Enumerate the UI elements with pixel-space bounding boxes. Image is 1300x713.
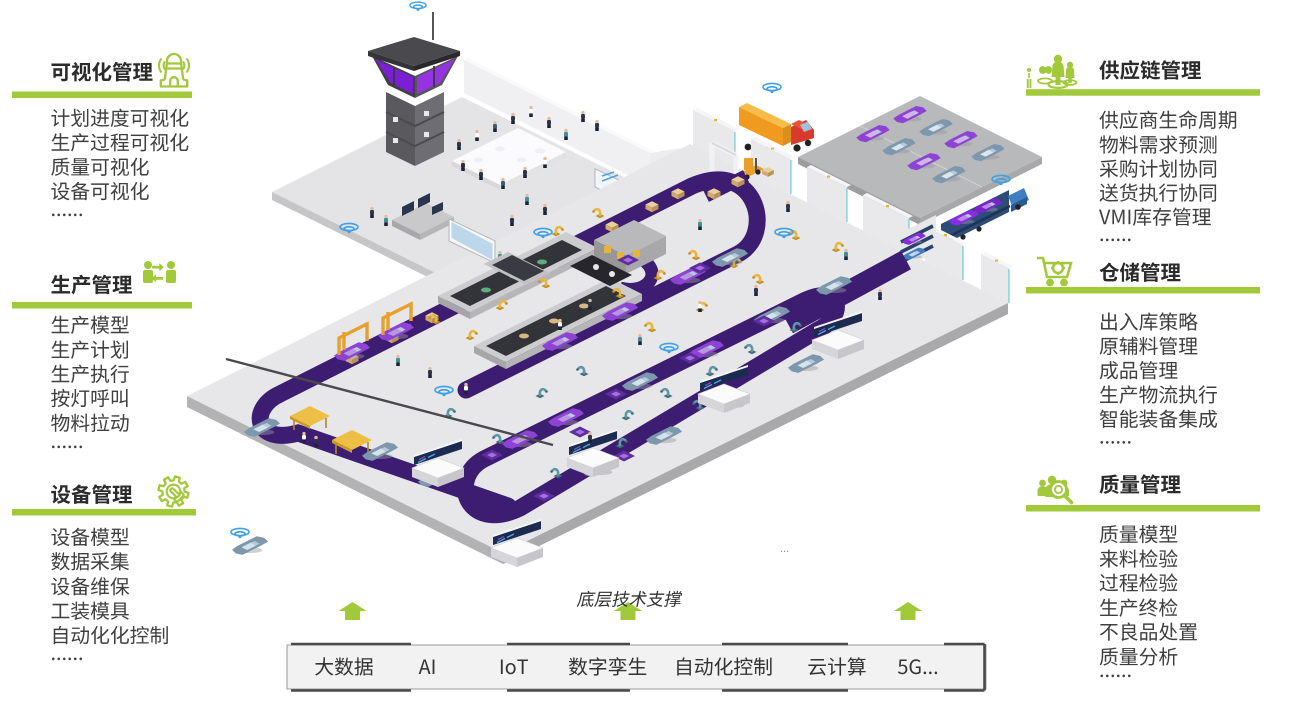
svg-text:...: ... [780, 543, 789, 555]
